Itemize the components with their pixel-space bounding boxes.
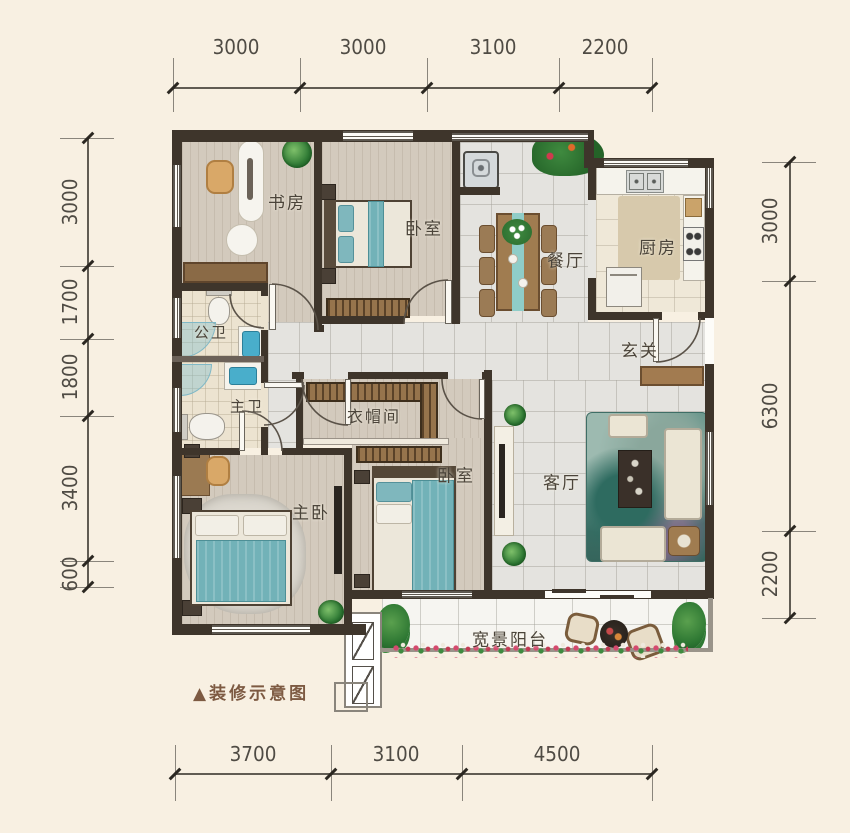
window-study-left bbox=[173, 165, 181, 227]
bedroom-mid-pillow bbox=[376, 504, 412, 524]
wall-corridor-closet bbox=[296, 379, 303, 455]
plan-caption: ▲装修示意图 bbox=[193, 679, 309, 704]
guest-bath-door-gap bbox=[261, 296, 268, 330]
master-chair bbox=[206, 456, 230, 486]
living-armchair bbox=[608, 414, 648, 438]
hall-plant-icon bbox=[504, 404, 526, 426]
dim-bottom-1: 3700 bbox=[230, 744, 277, 764]
dim-top-3: 3100 bbox=[470, 37, 517, 57]
master-plant-icon bbox=[318, 600, 344, 624]
dim-line-bottom bbox=[175, 773, 652, 775]
dim-left-2: 1700 bbox=[60, 279, 80, 326]
guest-bath-label: 公卫 bbox=[194, 326, 228, 341]
bedroom-top-nightstand bbox=[320, 184, 336, 200]
entry-door-gap bbox=[705, 318, 714, 364]
living-sofa-main bbox=[664, 428, 702, 520]
dim-right-3: 2200 bbox=[760, 551, 780, 598]
dim-top-1: 3000 bbox=[213, 37, 260, 57]
study-tea-table bbox=[226, 224, 258, 256]
bedroom-top-runner bbox=[368, 201, 384, 267]
bedroom-mid-duvet bbox=[412, 480, 454, 592]
dim-top-2: 3000 bbox=[340, 37, 387, 57]
tv-icon bbox=[499, 444, 505, 518]
bedroom-top-headboard bbox=[324, 200, 336, 268]
shaft-step-outline bbox=[334, 682, 368, 712]
window-bedroom-mid-bottom bbox=[402, 591, 472, 598]
dim-left-5: 600 bbox=[60, 556, 80, 591]
dim-right-1: 3000 bbox=[760, 198, 780, 245]
window-dining bbox=[452, 133, 588, 141]
dining-plate bbox=[508, 254, 518, 264]
floor-plan-canvas: 书房 卧室 餐厅 厨房 公卫 主卫 衣帽间 玄关 卧室 主卧 客厅 宽景阳台 3… bbox=[0, 0, 850, 833]
window-master-left bbox=[173, 476, 181, 558]
window-living-right bbox=[706, 432, 713, 505]
dining-chair bbox=[479, 289, 495, 317]
guest-sink-icon bbox=[242, 331, 260, 357]
dining-plate bbox=[518, 278, 528, 288]
living-sofa-small bbox=[600, 526, 666, 562]
window-kitchen-right bbox=[706, 168, 713, 208]
bedroom-top-wardrobe bbox=[326, 298, 410, 318]
dim-left-4: 3400 bbox=[60, 465, 80, 512]
master-tv-panel bbox=[334, 486, 342, 574]
wall-closet-stub-left bbox=[292, 372, 304, 379]
dining-label: 餐厅 bbox=[547, 254, 585, 271]
study-cabinet bbox=[183, 262, 268, 283]
dim-left-1: 3000 bbox=[60, 179, 80, 226]
guest-toilet-icon bbox=[208, 297, 230, 325]
master-pillow bbox=[195, 515, 239, 536]
dining-chair bbox=[541, 289, 557, 317]
master-bath-label: 主卫 bbox=[230, 400, 264, 415]
study-plant-icon bbox=[282, 138, 312, 168]
wall-fridge-stub bbox=[452, 187, 500, 195]
dim-top-4: 2200 bbox=[582, 37, 629, 57]
bedroom-mid-door-leaf bbox=[479, 379, 485, 419]
wall-study-door-stub bbox=[318, 325, 324, 332]
dim-line-right bbox=[789, 162, 791, 618]
sliding-door-leaf bbox=[600, 595, 634, 599]
closet-wardrobe bbox=[306, 382, 436, 402]
entry-label: 玄关 bbox=[621, 344, 659, 361]
wall-bath-bottom bbox=[172, 448, 240, 455]
wall-study-bedroom bbox=[314, 130, 322, 332]
study-door-leaf bbox=[269, 284, 276, 330]
wall-kitchen-bottom bbox=[588, 312, 662, 320]
master-duvet bbox=[196, 540, 286, 602]
kitchen-sink-basin bbox=[647, 173, 661, 190]
dim-line-top bbox=[173, 87, 652, 89]
window-master-bottom bbox=[212, 625, 310, 634]
window-master-bath bbox=[173, 388, 181, 432]
study-label: 书房 bbox=[268, 196, 306, 213]
corridor-floor bbox=[268, 380, 296, 448]
dim-line-left bbox=[87, 138, 89, 587]
bedroom-mid-pillow bbox=[376, 482, 412, 502]
wall-baths-mid bbox=[172, 356, 264, 362]
dim-bottom-3: 4500 bbox=[534, 744, 581, 764]
wall-closet-bedroom-mid bbox=[303, 438, 449, 445]
bedroom-top-door-leaf bbox=[445, 280, 452, 324]
fridge-detail bbox=[472, 159, 490, 177]
dim-right-2: 6300 bbox=[760, 383, 780, 430]
master-door-leaf bbox=[239, 411, 245, 451]
bedroom-top-nightstand bbox=[320, 268, 336, 284]
wall-master-bedroom-mid bbox=[344, 448, 352, 632]
dining-chair bbox=[479, 225, 495, 253]
master-label: 主卧 bbox=[292, 506, 330, 523]
master-toilet-icon bbox=[189, 413, 225, 440]
wall-master-top bbox=[282, 448, 348, 455]
bedroom-top-pillow bbox=[338, 205, 354, 232]
kitchen-opening bbox=[588, 200, 596, 278]
bedroom-mid-wardrobe bbox=[356, 446, 442, 463]
living-coffee-table bbox=[618, 450, 652, 508]
bedroom-top-pillow bbox=[338, 236, 354, 263]
balcony-railing-right bbox=[708, 598, 713, 652]
window-kitchen-top bbox=[604, 159, 688, 167]
window-guest-bath bbox=[173, 298, 181, 338]
kitchen-rack bbox=[685, 198, 702, 217]
kitchen-sink-basin bbox=[629, 173, 644, 190]
wall-guest-bath-top bbox=[172, 283, 268, 291]
bedroom-mid-label: 卧室 bbox=[437, 469, 475, 486]
bedroom-mid-nightstand bbox=[354, 470, 370, 484]
wall-bedroom-mid-right bbox=[484, 370, 492, 598]
wall-bedroom-top-bottom bbox=[322, 316, 404, 324]
study-desk-slot bbox=[247, 158, 253, 200]
living-label: 客厅 bbox=[543, 476, 581, 493]
master-bath-door-leaf bbox=[264, 382, 304, 388]
living-plant-icon bbox=[502, 542, 526, 566]
closet-label: 衣帽间 bbox=[347, 409, 401, 425]
bedroom-mid-nightstand bbox=[354, 574, 370, 588]
dim-bottom-2: 3100 bbox=[373, 744, 420, 764]
stove-icon bbox=[683, 227, 704, 261]
wall-right bbox=[705, 158, 714, 598]
balcony-label: 宽景阳台 bbox=[472, 633, 548, 650]
dining-chair bbox=[541, 225, 557, 253]
closet-wardrobe-side bbox=[420, 382, 438, 440]
wall-closet-top bbox=[348, 372, 448, 379]
wall-bedroom-dining bbox=[452, 130, 460, 324]
dining-chair bbox=[479, 257, 495, 285]
kitchen-appliance bbox=[606, 267, 642, 307]
living-side-table bbox=[668, 526, 700, 556]
master-pillow bbox=[243, 515, 287, 536]
sliding-door-leaf bbox=[552, 589, 586, 593]
study-chair bbox=[206, 160, 234, 194]
dining-centerpiece-flowers-icon bbox=[502, 219, 532, 245]
entry-shoe-cabinet bbox=[640, 366, 704, 386]
bedroom-top-label: 卧室 bbox=[405, 222, 443, 239]
window-bedroom-top bbox=[343, 131, 413, 141]
master-sink-icon bbox=[229, 367, 257, 385]
dim-left-3: 1800 bbox=[60, 354, 80, 401]
kitchen-label: 厨房 bbox=[639, 241, 677, 258]
